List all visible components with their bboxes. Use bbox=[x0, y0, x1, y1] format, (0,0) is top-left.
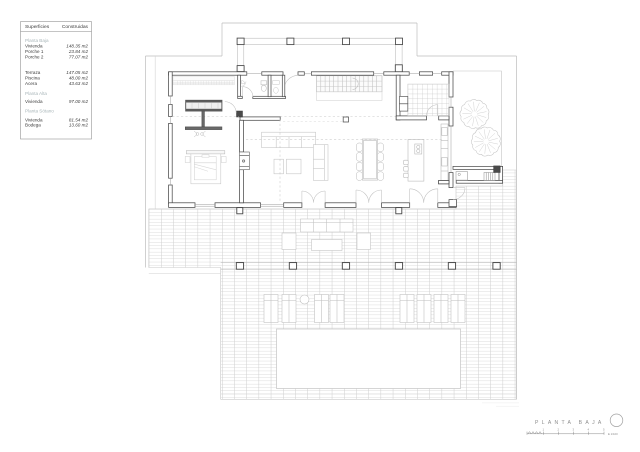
svg-text:147.05 m2: 147.05 m2 bbox=[66, 70, 88, 75]
svg-text:E 1/100: E 1/100 bbox=[608, 432, 618, 436]
svg-text:Construidas: Construidas bbox=[62, 24, 89, 30]
svg-text:13.60 m2: 13.60 m2 bbox=[69, 123, 89, 128]
svg-text:Porche 1: Porche 1 bbox=[25, 49, 44, 54]
svg-text:48.00 m2: 48.00 m2 bbox=[69, 76, 89, 81]
svg-text:Planta Alta: Planta Alta bbox=[25, 91, 47, 96]
svg-text:Vivienda: Vivienda bbox=[25, 99, 43, 104]
svg-text:97.00 m2: 97.00 m2 bbox=[69, 99, 89, 104]
svg-text:81.54 m2: 81.54 m2 bbox=[69, 117, 89, 122]
svg-text:148.35 m2: 148.35 m2 bbox=[66, 44, 88, 49]
svg-text:77.07 m2: 77.07 m2 bbox=[69, 54, 89, 59]
svg-text:Planta Baja: Planta Baja bbox=[25, 38, 49, 43]
svg-text:Porche 2: Porche 2 bbox=[25, 54, 44, 59]
svg-text:23.84 m2: 23.84 m2 bbox=[68, 49, 89, 54]
svg-text:Vivienda: Vivienda bbox=[25, 117, 43, 122]
svg-text:Bodega: Bodega bbox=[25, 123, 41, 128]
svg-text:PLANTA BAJA: PLANTA BAJA bbox=[535, 420, 605, 426]
svg-text:Acera: Acera bbox=[25, 81, 37, 86]
svg-text:Vivienda: Vivienda bbox=[25, 44, 43, 49]
svg-text:43.63 m2: 43.63 m2 bbox=[69, 81, 89, 86]
svg-text:Terraza: Terraza bbox=[25, 70, 41, 75]
svg-text:Piscina: Piscina bbox=[25, 76, 40, 81]
svg-text:Planta Sótano: Planta Sótano bbox=[25, 109, 54, 114]
svg-text:Superficies: Superficies bbox=[25, 24, 50, 30]
